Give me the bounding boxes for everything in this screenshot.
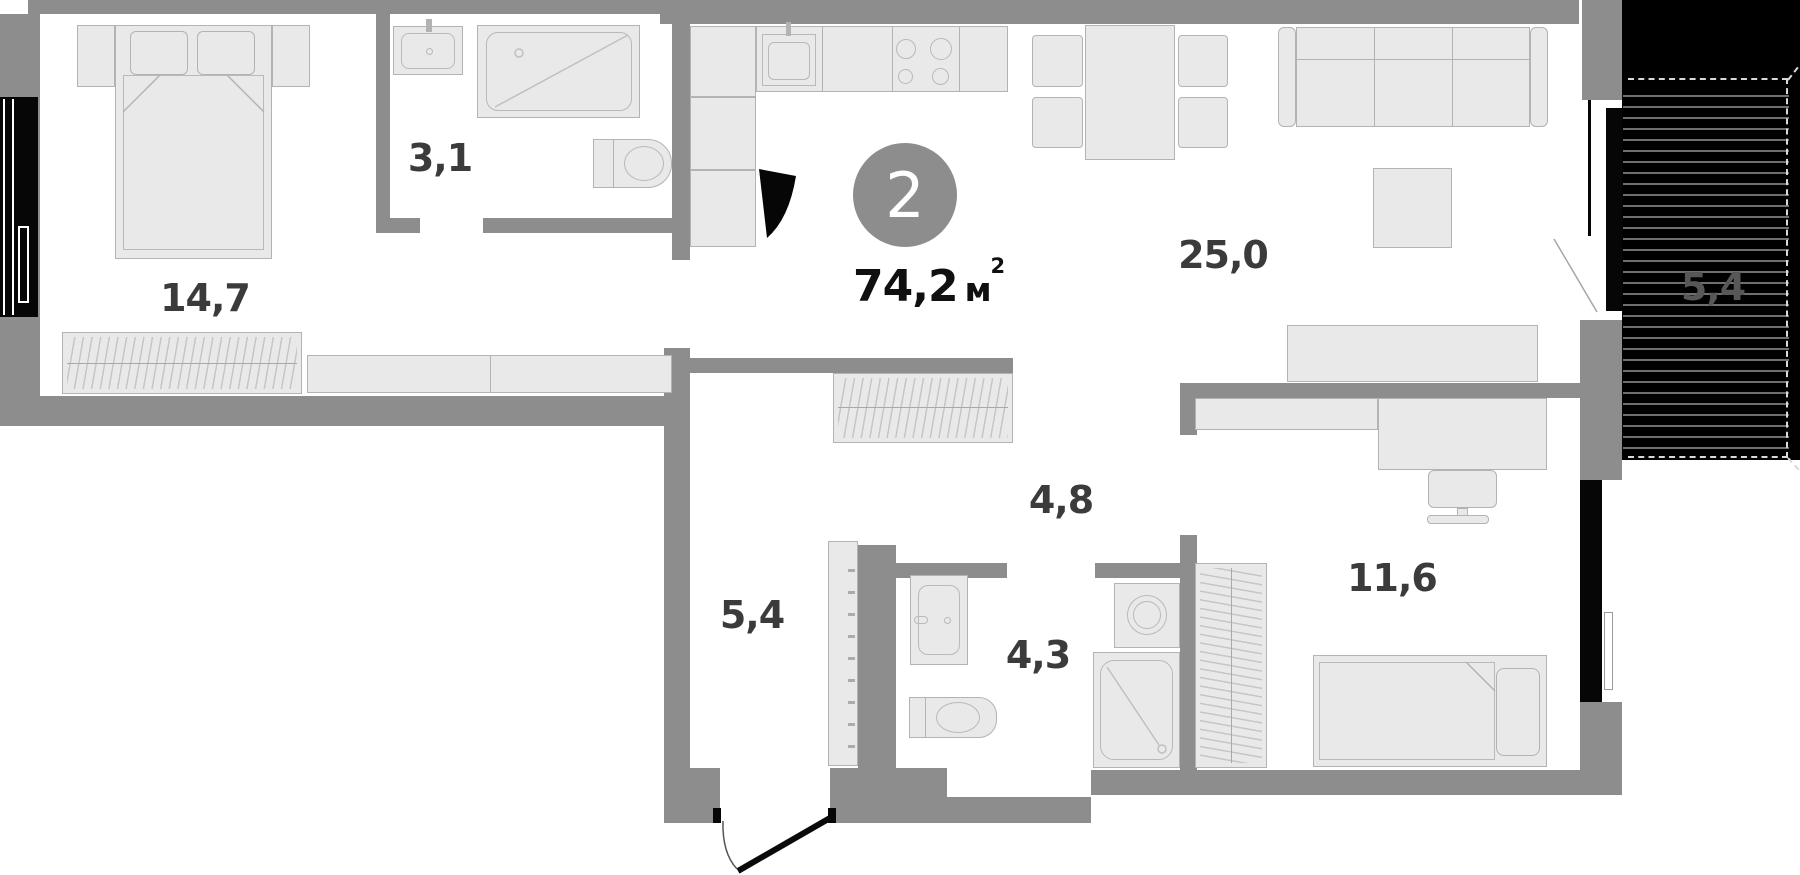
stove-burner-4 [932, 68, 949, 85]
desk-strip [1195, 398, 1378, 430]
hallway-cabinet-ticks [848, 550, 855, 757]
balcony-door-frame [1606, 108, 1622, 311]
desk-chair-back [1427, 515, 1489, 524]
sofa-armrest-right [1530, 27, 1548, 127]
entrance-door-arc [723, 821, 737, 869]
wall-entrance-right [830, 768, 947, 823]
room-count-number: 2 [885, 159, 924, 232]
stove-burner-2 [930, 38, 952, 60]
entrance-jamb-left [713, 808, 721, 823]
dining-table [1085, 25, 1175, 160]
toilet-top-bowl [624, 146, 664, 181]
counter-divider-1 [822, 27, 823, 91]
livingroom-cabinet [1287, 325, 1538, 382]
sink-lower-dot [944, 617, 951, 624]
bed-single-pillow [1496, 668, 1540, 756]
window-bedroom2 [1580, 480, 1602, 702]
dining-chair-4 [1178, 97, 1228, 148]
bed-single-mattress [1319, 662, 1495, 760]
desk-return [1378, 398, 1547, 470]
sofa-armrest-left [1278, 27, 1296, 127]
washer-drum-inner [1133, 601, 1161, 629]
stove-burner-3 [898, 69, 913, 84]
room-count-badge: 2 [853, 143, 957, 247]
wardrobe-bedroom-main [62, 332, 302, 394]
toilet-lower-tank-line [925, 698, 926, 737]
wall-hallway-bathroom [858, 545, 896, 768]
wall-bottom-mid [947, 797, 1091, 823]
window-bedroom-main-pane1 [3, 99, 5, 315]
label-hallway: 5,4 [720, 593, 784, 637]
window-livingroom-pane [1588, 100, 1591, 236]
dining-chair-1 [1032, 35, 1083, 87]
toilet-lower-bowl [936, 702, 980, 733]
balcony-door-swing [1554, 239, 1597, 312]
wall-bedroom2-top [1180, 383, 1622, 398]
stove-burner-1 [896, 39, 916, 59]
floor-plan: 14,7 3,1 25,0 5,4 4,8 4,3 11,6 5,4 2 74,… [0, 0, 1800, 875]
label-bedroom-main: 14,7 [160, 276, 250, 320]
sofa-back [1296, 27, 1530, 60]
counter-divider-2 [892, 27, 893, 91]
pillow-right [197, 31, 255, 75]
wall-entrance-left [664, 768, 720, 823]
nightstand-right [272, 25, 310, 87]
total-area-unit: м [965, 270, 991, 309]
wardrobe-corridor-hangers [838, 378, 1008, 438]
label-balcony: 5,4 [1681, 265, 1745, 309]
nightstand-left [77, 25, 115, 87]
total-area-unit-exp: 2 [991, 254, 1005, 278]
label-corridor: 4,8 [1029, 478, 1093, 522]
kitchen-tall-unit-1 [690, 26, 756, 97]
sofa-divider-1 [1374, 28, 1375, 126]
shower-lower-tray [1100, 660, 1173, 760]
kitchen-fridge [690, 170, 756, 247]
toilet-top-tank-line [613, 140, 614, 187]
wall-kitchen-bathroom [672, 0, 690, 260]
desk-chair-seat [1428, 470, 1497, 508]
kitchen-tap [786, 22, 791, 36]
wall-bathroom-lower-top-b [1095, 563, 1180, 578]
shower-tray-top [486, 32, 632, 111]
wall-bedroom-main-bottom [0, 396, 676, 426]
window-bedroom-main-handle [18, 226, 29, 303]
sofa-seat [1296, 59, 1530, 127]
kitchen-tall-unit-2 [690, 97, 756, 170]
wardrobe-corridor [833, 373, 1013, 443]
coffee-table [1373, 168, 1452, 248]
sink-dot-top [426, 48, 433, 55]
wall-top-left [28, 0, 660, 14]
wall-bathroom-top-b [483, 218, 672, 233]
wall-pillar-top-right [1582, 0, 1622, 100]
wall-corridor-top [690, 358, 1013, 373]
sofa-divider-2 [1452, 28, 1453, 126]
label-kitchen-living: 25,0 [1178, 233, 1268, 277]
wall-bedroom-bathroom [376, 14, 390, 218]
sink-lower-handle [914, 616, 928, 624]
kitchen-sink-basin [768, 42, 810, 80]
entrance-jamb-right [828, 808, 836, 823]
counter-divider-3 [959, 27, 960, 91]
wall-bottom-right [1091, 770, 1622, 795]
dining-chair-3 [1178, 35, 1228, 87]
pillow-left [130, 31, 188, 75]
blanket [123, 75, 264, 250]
total-area: 74,2м2 [853, 254, 1004, 312]
entrance-door-leaf [738, 818, 830, 871]
sink-tap-top [426, 19, 432, 32]
wardrobe-bedroom2 [1195, 563, 1267, 768]
window-bedroom2-casement [1604, 612, 1613, 690]
window-bedroom-main-pane2 [12, 99, 14, 315]
hallway-cabinet [828, 541, 858, 766]
fridge-door-wedge [759, 169, 796, 238]
label-bedroom-second: 11,6 [1347, 556, 1437, 600]
wall-pillar-mid-right [1580, 320, 1622, 480]
wall-top-right [660, 0, 1579, 24]
wall-pillar-bottom-right [1580, 702, 1622, 795]
dresser-divider [490, 356, 491, 392]
wall-bathroom-top-a [376, 218, 420, 233]
label-bathroom-lower: 4,3 [1006, 633, 1070, 677]
dining-chair-2 [1032, 97, 1083, 148]
total-area-value: 74,2 [853, 261, 958, 312]
label-bathroom-top: 3,1 [408, 136, 472, 180]
